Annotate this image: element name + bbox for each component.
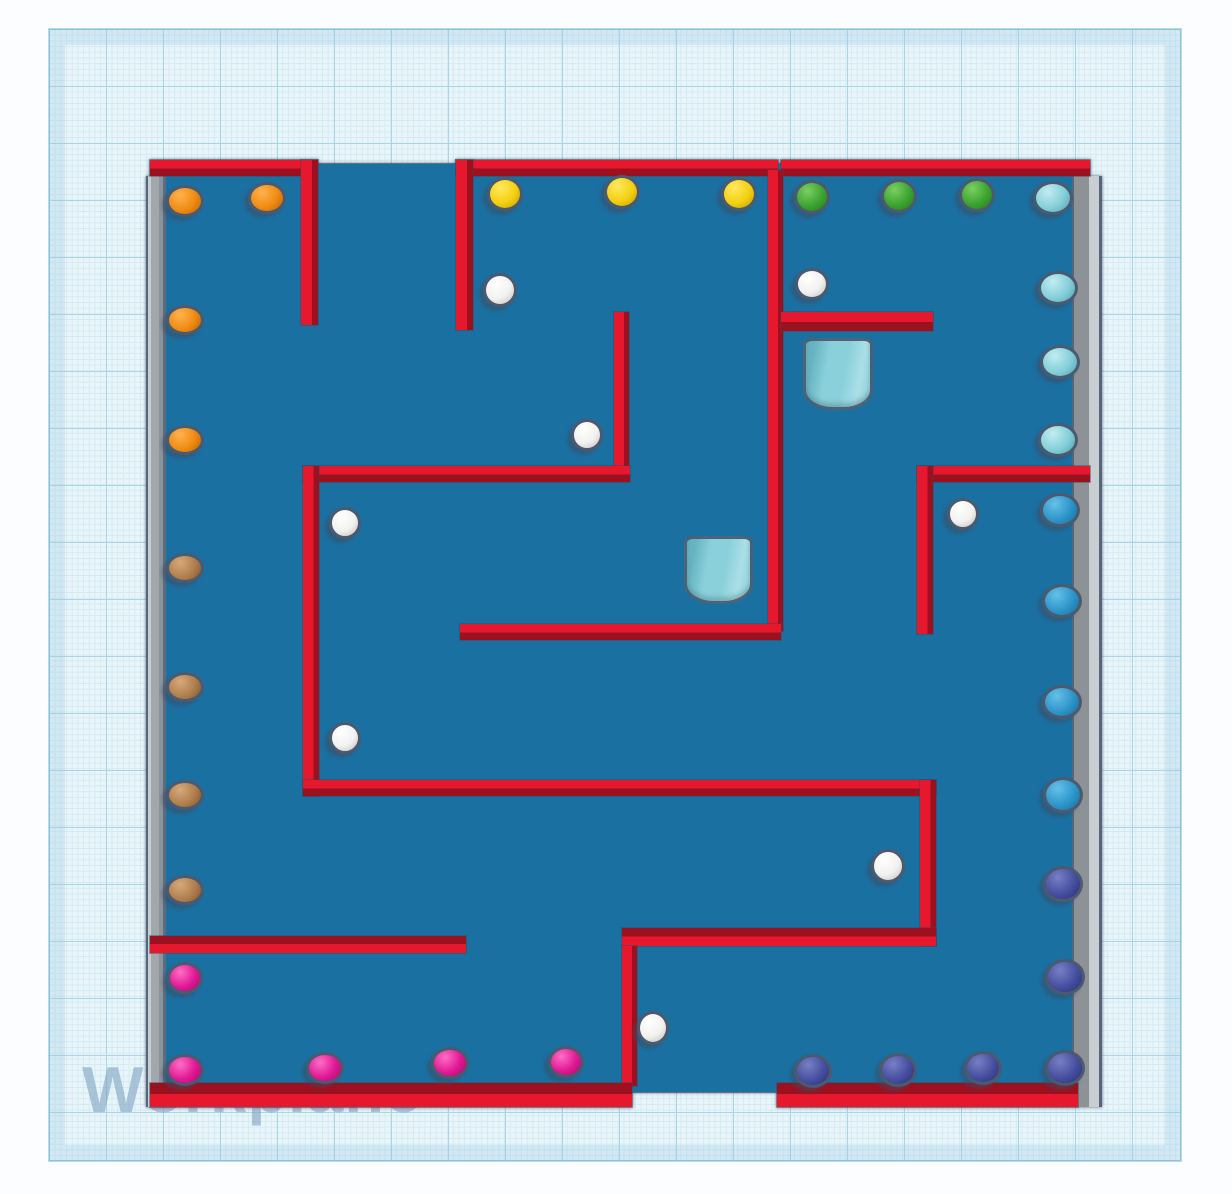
marble-orange[interactable] [166, 425, 204, 455]
marble-ltcyan[interactable] [1040, 345, 1080, 379]
marble-navy[interactable] [1045, 959, 1085, 995]
marble-navy[interactable] [1043, 866, 1083, 902]
marble-ltcyan[interactable] [1033, 181, 1073, 215]
maze-wall[interactable] [303, 780, 936, 796]
marble-ltcyan[interactable] [1038, 423, 1078, 457]
marble-orange[interactable] [166, 185, 204, 217]
marble-mdblue[interactable] [1040, 493, 1080, 527]
marble-magenta[interactable] [306, 1052, 344, 1084]
maze-wall[interactable] [150, 160, 317, 176]
maze-wall[interactable] [456, 160, 473, 330]
maze-wall[interactable] [622, 928, 936, 946]
marble-green[interactable] [794, 180, 830, 214]
marble-magenta[interactable] [166, 1054, 204, 1086]
marble-mdblue[interactable] [1042, 584, 1082, 618]
marble-yellow[interactable] [604, 175, 640, 209]
maze-wall[interactable] [920, 780, 936, 946]
marble-brown[interactable] [166, 875, 204, 905]
marble-orange[interactable] [166, 305, 204, 335]
marble-white[interactable] [947, 498, 979, 530]
maze-layer [0, 0, 1232, 1194]
maze-wall[interactable] [777, 1083, 1078, 1107]
maze-wall[interactable] [303, 466, 630, 482]
marble-white[interactable] [483, 273, 517, 307]
marble-white[interactable] [571, 419, 603, 451]
marble-brown[interactable] [166, 553, 204, 583]
marble-brown[interactable] [166, 672, 204, 702]
marble-orange[interactable] [248, 182, 286, 214]
maze-wall[interactable] [781, 160, 1090, 176]
maze-wall[interactable] [301, 160, 318, 325]
maze-wall[interactable] [917, 466, 933, 634]
maze-wall[interactable] [150, 1083, 632, 1107]
maze-wall[interactable] [781, 312, 933, 331]
maze-wall[interactable] [622, 946, 637, 1086]
marble-white[interactable] [329, 722, 361, 754]
marble-white[interactable] [871, 849, 905, 883]
marble-magenta[interactable] [167, 962, 203, 994]
marble-navy[interactable] [964, 1051, 1002, 1085]
marble-magenta[interactable] [548, 1046, 584, 1078]
marble-navy[interactable] [794, 1054, 832, 1088]
marble-ltcyan[interactable] [1038, 271, 1078, 305]
cylinder-obstacle[interactable] [803, 338, 873, 410]
marble-white[interactable] [329, 507, 361, 539]
marble-navy[interactable] [1045, 1050, 1085, 1086]
marble-white[interactable] [795, 268, 829, 300]
maze-wall[interactable] [614, 312, 629, 470]
marble-brown[interactable] [166, 780, 204, 810]
marble-yellow[interactable] [721, 177, 757, 211]
maze-wall[interactable] [456, 160, 778, 176]
perimeter-wall-left[interactable] [146, 176, 166, 1107]
maze-wall[interactable] [150, 936, 466, 953]
viewport-3d: Workplane [0, 0, 1232, 1194]
maze-wall[interactable] [303, 466, 319, 796]
marble-mdblue[interactable] [1042, 685, 1082, 719]
maze-wall[interactable] [917, 466, 1090, 482]
maze-wall[interactable] [768, 170, 783, 631]
maze-wall[interactable] [460, 624, 781, 640]
marble-navy[interactable] [879, 1053, 917, 1087]
cylinder-obstacle[interactable] [684, 536, 753, 604]
marble-white[interactable] [637, 1011, 669, 1045]
marble-magenta[interactable] [431, 1047, 469, 1079]
marble-mdblue[interactable] [1043, 777, 1083, 813]
marble-green[interactable] [959, 178, 995, 212]
marble-green[interactable] [881, 179, 917, 213]
marble-yellow[interactable] [487, 177, 523, 211]
